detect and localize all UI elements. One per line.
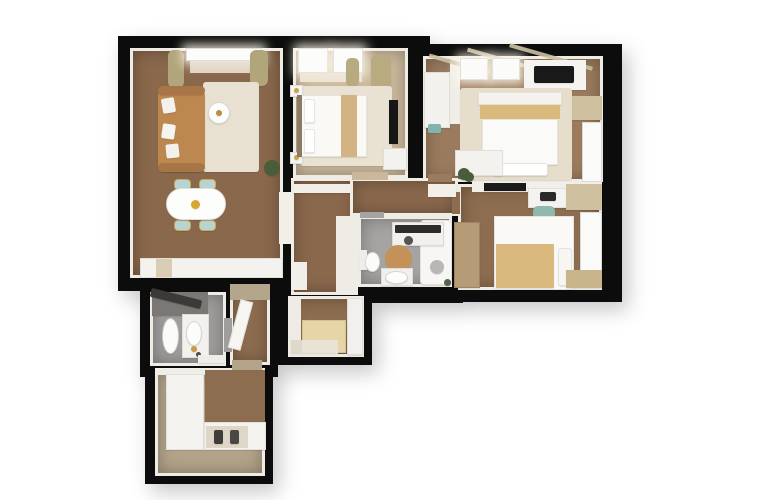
hall-cabinet xyxy=(291,262,307,290)
curtain-bedroom3 xyxy=(566,270,602,288)
laptop-bedroom3 xyxy=(540,192,556,201)
wardrobe-bedroom3 xyxy=(454,222,480,288)
wall-face-small-room xyxy=(288,296,301,340)
doorway-bedroom2-hall xyxy=(428,174,452,182)
cabinet-entry-vertical xyxy=(166,374,204,450)
teal-accent-bedroom2 xyxy=(428,124,441,133)
floor-plan-render xyxy=(0,0,770,500)
tv-bedroom3 xyxy=(484,183,526,191)
washing-machine-panel xyxy=(395,225,441,233)
bed-bedroom2-gold-band xyxy=(480,105,560,119)
wall-face-bathroom-west xyxy=(336,216,358,295)
plant-living xyxy=(264,160,280,176)
shoe xyxy=(214,430,223,444)
window-bedroom3 xyxy=(580,212,602,276)
window-bedroom2 xyxy=(582,122,602,182)
washing-machine-door xyxy=(404,236,413,245)
hall-shelf xyxy=(428,184,456,197)
sofa-pillow xyxy=(161,97,176,114)
mirror-bathroom2 xyxy=(162,318,179,354)
bed-bedroom1-runner xyxy=(341,95,357,157)
plant-hall xyxy=(464,172,474,182)
dining-table-decor xyxy=(191,200,200,209)
wardrobe-small-room xyxy=(347,298,363,355)
skylight-window xyxy=(460,58,488,80)
toilet-bowl xyxy=(365,252,380,272)
sofa-pillow xyxy=(165,143,179,158)
sofa-pillow xyxy=(161,123,176,140)
tv-bedroom2 xyxy=(534,66,574,83)
curtain-right-living xyxy=(250,50,268,86)
shoe xyxy=(230,430,239,444)
entry-mat-corridor xyxy=(230,284,270,300)
wood-patch-entry xyxy=(205,370,265,424)
sofa-armrest-top xyxy=(158,86,205,95)
coffee-table-decor xyxy=(216,110,222,116)
curtain-bedroom1-mid xyxy=(346,58,359,86)
shelf-bathroom2 xyxy=(198,355,224,363)
window-bedroom1 xyxy=(298,48,328,73)
window-glow-living xyxy=(190,61,258,73)
sink-bathroom2 xyxy=(186,321,202,346)
tv-bedroom1 xyxy=(389,100,398,144)
mirror-bathroom xyxy=(430,260,444,274)
sofa-armrest-bottom xyxy=(158,163,205,172)
rooms-and-furniture-layer xyxy=(0,0,770,500)
cabinet-bedroom2-left xyxy=(424,72,450,128)
dining-chair xyxy=(174,220,191,231)
gold-accent-bathroom2 xyxy=(191,346,197,352)
bed-bedroom1-headboard xyxy=(297,95,302,157)
skylight-window xyxy=(492,58,520,80)
doorway-hall-bathroom xyxy=(360,212,384,218)
rug-living xyxy=(203,82,259,172)
roman-shade-bedroom3 xyxy=(566,184,602,210)
floor-light-small-room xyxy=(290,340,338,356)
blanket-bedroom3 xyxy=(496,244,554,288)
bed-pillow xyxy=(304,99,315,123)
curtain-left-living xyxy=(168,50,184,88)
living-console-accent xyxy=(156,259,172,277)
bed-pillow xyxy=(304,129,315,153)
dresser-bedroom1 xyxy=(383,148,407,170)
dining-chair xyxy=(199,220,216,231)
bed-bedroom2-headboard xyxy=(478,92,562,105)
candle-decor xyxy=(294,88,299,93)
sink-bathroom xyxy=(385,271,408,284)
hall-shelf xyxy=(293,184,351,193)
wall-face-bedroom2 xyxy=(450,58,460,124)
plant-bathroom xyxy=(444,279,451,286)
shoe-niche xyxy=(206,426,248,448)
doorway-bedroom1-hall xyxy=(352,172,388,180)
doorway-living-hall xyxy=(279,192,293,244)
